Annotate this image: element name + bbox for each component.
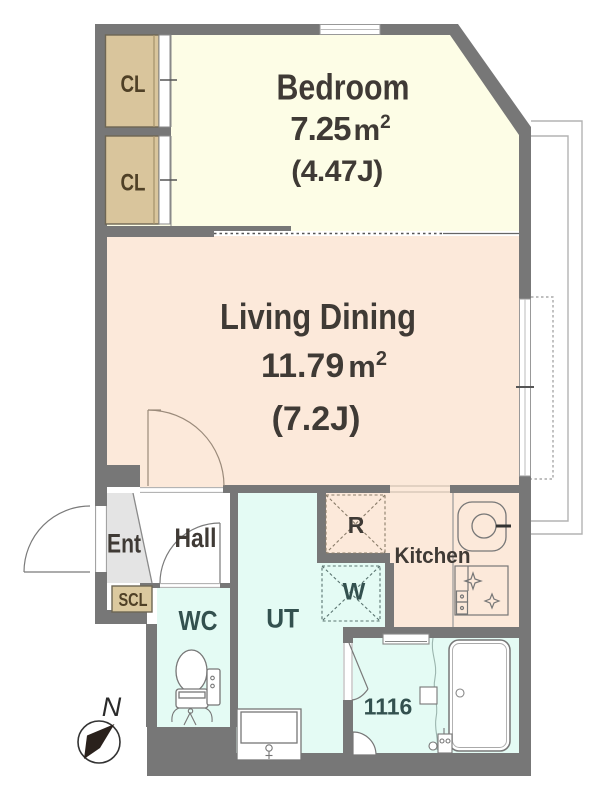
svg-text:Kitchen: Kitchen <box>395 543 471 568</box>
svg-text:11.79m2: 11.79m2 <box>261 347 387 385</box>
svg-text:7.25m2: 7.25m2 <box>290 110 390 147</box>
svg-text:(7.2J): (7.2J) <box>272 400 361 438</box>
svg-text:Ent: Ent <box>107 529 141 559</box>
svg-text:SCL: SCL <box>119 590 148 610</box>
svg-text:CL: CL <box>121 170 146 197</box>
svg-text:N: N <box>102 692 122 722</box>
svg-text:Hall: Hall <box>175 523 217 553</box>
svg-text:CL: CL <box>121 71 146 98</box>
svg-text:WC: WC <box>179 605 218 636</box>
svg-text:W: W <box>343 579 366 606</box>
svg-text:Living Dining: Living Dining <box>220 296 416 337</box>
svg-text:UT: UT <box>266 604 299 634</box>
svg-text:R: R <box>348 512 365 538</box>
svg-text:(4.47J): (4.47J) <box>291 155 383 188</box>
svg-text:Bedroom: Bedroom <box>277 67 410 108</box>
svg-text:1116: 1116 <box>364 694 413 720</box>
